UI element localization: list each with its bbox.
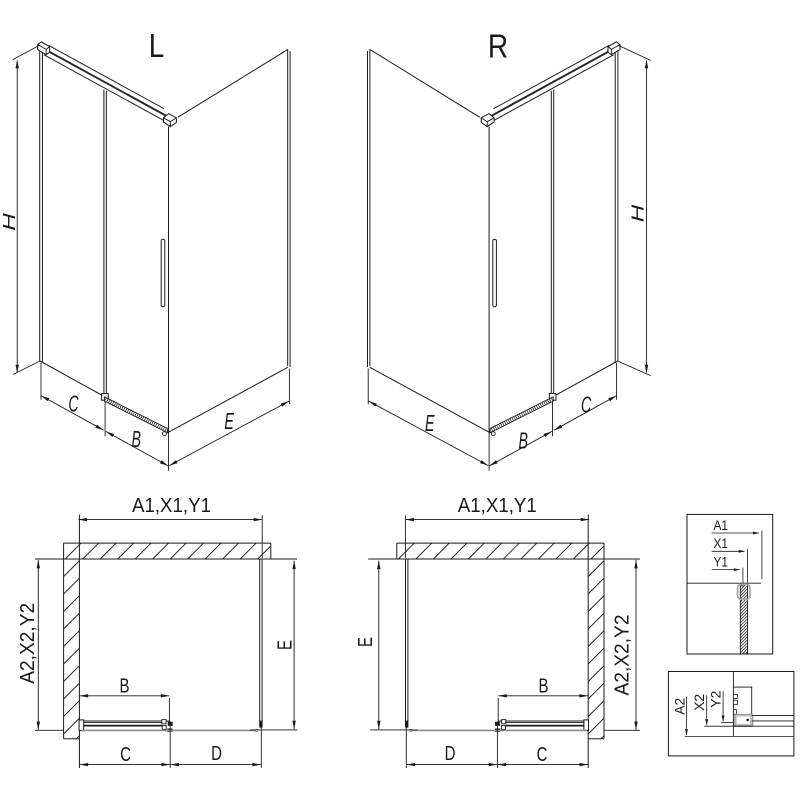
svg-text:C: C bbox=[120, 743, 131, 766]
svg-text:E: E bbox=[224, 410, 234, 435]
svg-text:H: H bbox=[0, 213, 19, 231]
svg-text:Y1: Y1 bbox=[714, 555, 729, 570]
svg-text:E: E bbox=[273, 640, 296, 650]
svg-text:Y2: Y2 bbox=[709, 691, 724, 708]
svg-text:A2: A2 bbox=[672, 698, 687, 715]
svg-text:E: E bbox=[425, 412, 435, 437]
svg-text:H: H bbox=[628, 204, 648, 222]
svg-text:X2: X2 bbox=[692, 694, 707, 711]
svg-text:A1,X1,Y1: A1,X1,Y1 bbox=[132, 495, 211, 517]
svg-text:C: C bbox=[537, 743, 548, 766]
svg-text:E: E bbox=[354, 637, 377, 647]
svg-text:B: B bbox=[131, 428, 141, 453]
svg-text:C: C bbox=[68, 392, 78, 417]
svg-text:R: R bbox=[488, 28, 508, 65]
svg-text:A1: A1 bbox=[714, 518, 729, 533]
svg-text:B: B bbox=[539, 674, 549, 697]
svg-text:L: L bbox=[149, 28, 165, 65]
svg-text:A2,X2,Y2: A2,X2,Y2 bbox=[612, 615, 634, 696]
svg-text:X1: X1 bbox=[714, 536, 729, 551]
svg-text:D: D bbox=[445, 742, 456, 765]
svg-text:C: C bbox=[581, 393, 591, 418]
svg-text:B: B bbox=[120, 674, 130, 697]
svg-text:A1,X1,Y1: A1,X1,Y1 bbox=[458, 495, 537, 517]
svg-text:A2,X2,Y2: A2,X2,Y2 bbox=[17, 603, 39, 684]
svg-text:B: B bbox=[519, 429, 529, 454]
svg-text:D: D bbox=[211, 742, 222, 765]
